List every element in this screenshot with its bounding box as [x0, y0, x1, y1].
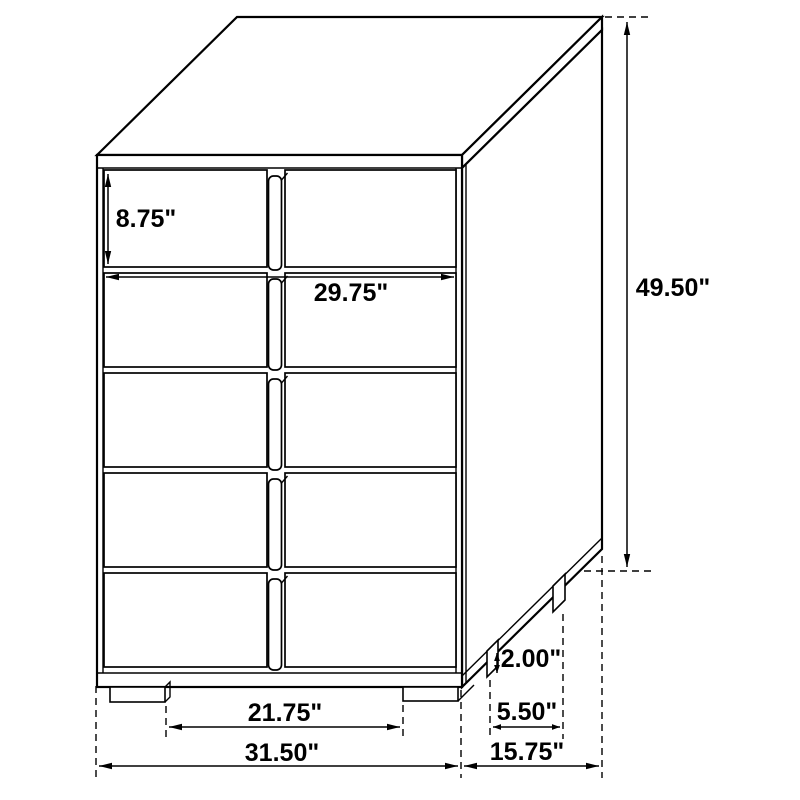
dim-overall-height-label: 49.50"	[636, 274, 710, 302]
drawer-row4-left	[104, 473, 267, 567]
drawer-row4-right	[285, 473, 456, 567]
chest-right-foot	[403, 687, 458, 701]
dim-side-foot-spacing-label: 5.50"	[497, 698, 558, 726]
drawer-handle-row2	[269, 279, 282, 370]
dim-overall-depth-label: 15.75"	[490, 738, 564, 766]
drawer-handle-row1	[269, 176, 282, 270]
dim-front-foot-spacing-label: 21.75"	[248, 699, 322, 727]
drawer-row2-left	[104, 273, 267, 367]
dim-top-drawer-height-label: 8.75"	[116, 205, 177, 233]
dim-foot-height-label: 2.00"	[501, 645, 562, 673]
drawer-row5-right	[285, 573, 456, 667]
chest-left-foot	[110, 687, 165, 702]
dim-front-inner-width-label: 29.75"	[314, 279, 388, 307]
drawer-handle-row4	[269, 479, 282, 570]
dimension-diagram-page: 8.75" 29.75" 49.50" 2.00" 21.75" 5.50" 3…	[0, 0, 800, 800]
drawer-row1-right	[285, 170, 456, 267]
chest-figure	[97, 17, 602, 702]
drawer-row3-left	[104, 373, 267, 467]
dim-overall-width-label: 31.50"	[245, 739, 319, 767]
chest-dimension-diagram: 8.75" 29.75" 49.50" 2.00" 21.75" 5.50" 3…	[0, 0, 800, 800]
drawer-handle-row5	[269, 579, 282, 670]
drawer-row3-right	[285, 373, 456, 467]
drawer-handle-row3	[269, 379, 282, 470]
drawer-row5-left	[104, 573, 267, 667]
